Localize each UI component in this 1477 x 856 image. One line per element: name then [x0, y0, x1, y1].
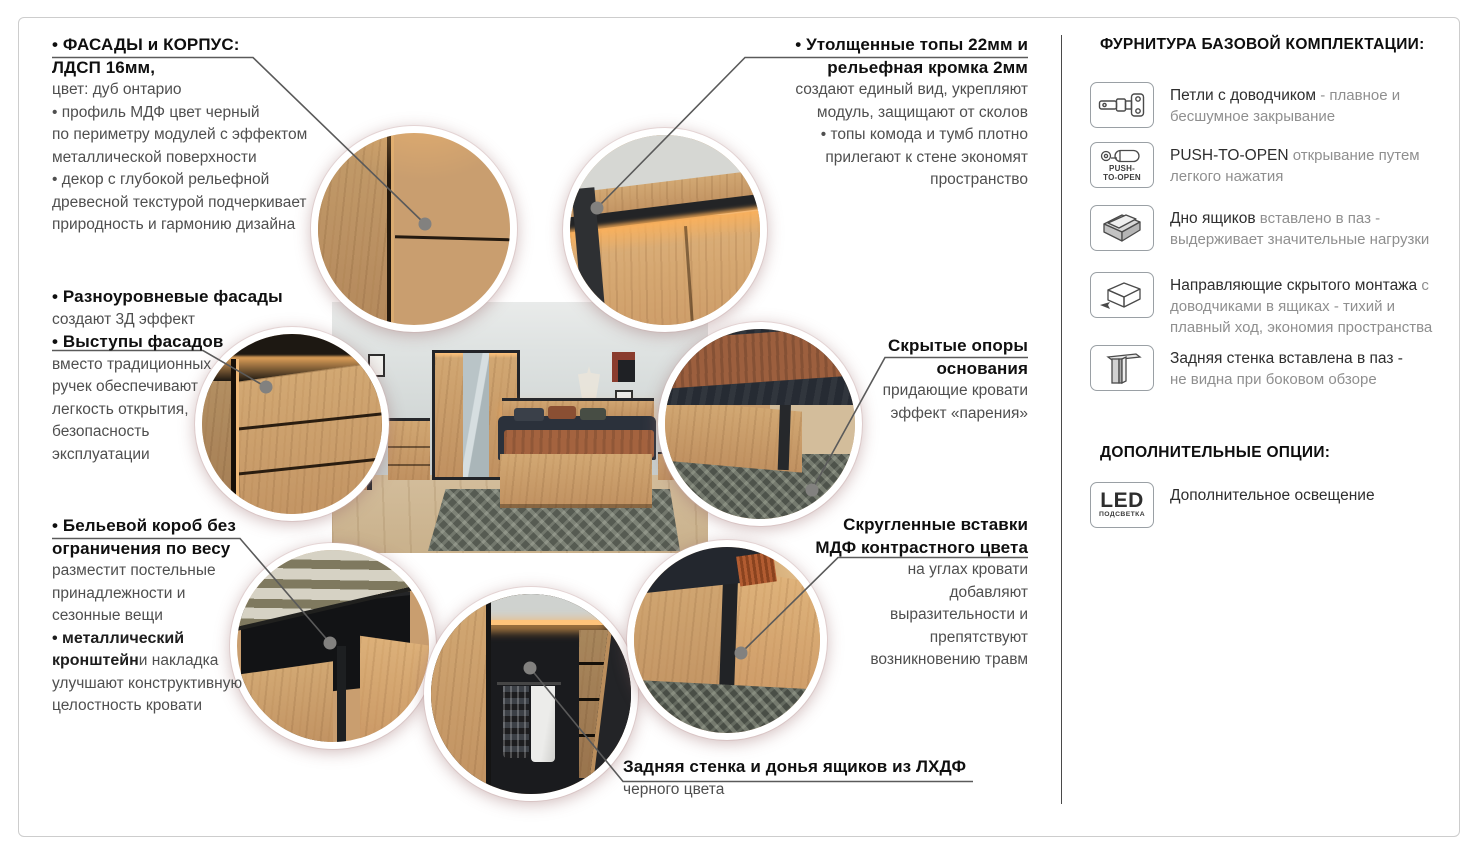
plaid-shirt [503, 686, 529, 758]
callout-back-panel: Задняя стенка и донья ящиков из ЛХДФчерн… [623, 756, 966, 801]
sidebar-item: PUSH-TO-OPENPUSH-TO-OPEN открывание путе… [1090, 142, 1450, 188]
sidebar-item: Направляющие скрытого монтажа с доводчик… [1090, 272, 1450, 338]
sidebar-item-text: Направляющие скрытого монтажа с доводчик… [1170, 272, 1450, 338]
callout-hidden-supports: Скрытые опорыоснованияпридающие кроватиэ… [883, 335, 1028, 425]
hinge-icon [1090, 82, 1154, 128]
infographic-canvas: • ФАСАДЫ и КОРПУС:ЛДСП 16мм,цвет: дуб он… [0, 0, 1477, 856]
sidebar-item-text: Задняя стенка вставлена в паз -не видна … [1170, 345, 1450, 390]
chest-of-drawers [388, 418, 430, 480]
sidebar-item-text: Дополнительное освещение [1170, 482, 1450, 506]
callout-linen-box: • Бельевой короб безограничения по весур… [52, 515, 242, 718]
detail-circle-linen-box [230, 543, 436, 749]
vertical-divider [1061, 35, 1062, 804]
options-title: ДОПОЛНИТЕЛЬНЫЕ ОПЦИИ: [1100, 444, 1330, 462]
sidebar-item: Задняя стенка вставлена в паз -не видна … [1090, 345, 1450, 391]
sidebar-item-text: Дно ящиков вставлено в паз - выдерживает… [1170, 205, 1450, 250]
detail-circle-tops [563, 128, 767, 332]
sidebar-item: Дно ящиков вставлено в паз - выдерживает… [1090, 205, 1450, 251]
sidebar-item: Петли с доводчиком - плавное и бесшумное… [1090, 82, 1450, 128]
callout-multilevel-facades: • Разноуровневые фасадысоздают 3Д эффект… [52, 286, 283, 466]
detail-circle-bed-supports [658, 322, 862, 526]
white-shirt [531, 686, 555, 762]
bed-base [500, 454, 652, 508]
drawer-bottom-icon [1090, 205, 1154, 251]
back-panel-icon [1090, 345, 1154, 391]
led-icon: LEDПОДСВЕТКА [1090, 482, 1154, 528]
wall-art [612, 352, 635, 382]
callout-facades: • ФАСАДЫ и КОРПУС:ЛДСП 16мм,цвет: дуб он… [52, 34, 307, 237]
sidebar-item-text: Петли с доводчиком - плавное и бесшумное… [1170, 82, 1450, 127]
sidebar-item: LEDПОДСВЕТКАДополнительное освещение [1090, 482, 1450, 528]
detail-circle-wardrobe-interior [424, 587, 638, 801]
detail-circle-rounded-inserts [627, 540, 827, 740]
wardrobe-mirror [463, 353, 489, 477]
drawer-slides-icon [1090, 272, 1154, 318]
callout-tops: • Утолщенные топы 22мм ирельефная кромка… [795, 34, 1028, 192]
callout-rounded-inserts: Скругленные вставкиМДФ контрастного цвет… [815, 514, 1028, 672]
push-to-open-icon: PUSH-TO-OPEN [1090, 142, 1154, 188]
sidebar-item-text: PUSH-TO-OPEN открывание путем легкого на… [1170, 142, 1450, 187]
detail-circle-facades [311, 126, 517, 332]
hardware-title: ФУРНИТУРА БАЗОВОЙ КОМПЛЕКТАЦИИ: [1100, 36, 1425, 54]
